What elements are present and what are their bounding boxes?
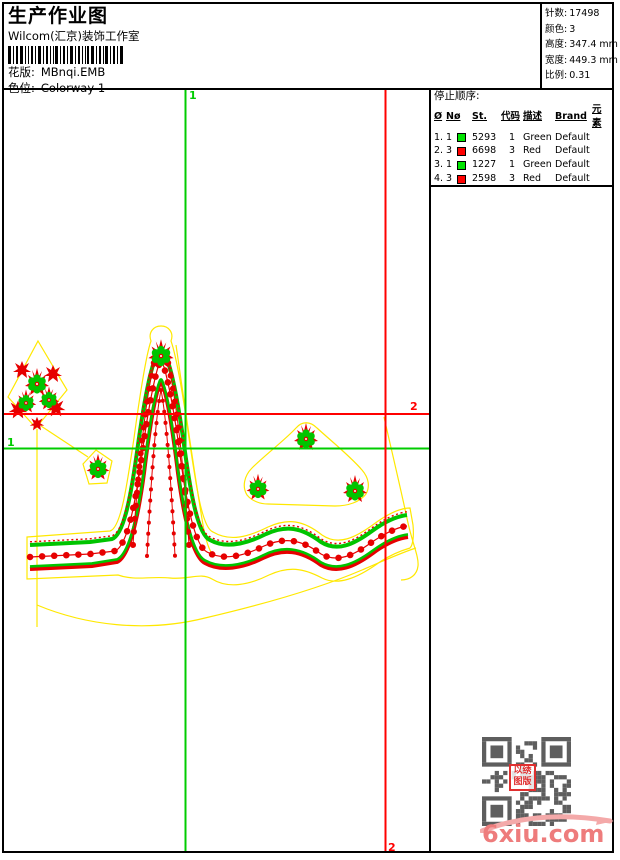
right-column: 停止顺序: Ø Nø St. 代码 描述 Brand 元素 1. 1 5293 [431,88,612,851]
stat-value: 347.4 mm [569,39,618,50]
row-no: 2. [434,144,446,158]
row-no: 5. [434,186,446,187]
row-code: 3 [501,172,523,186]
col-hash: Ø [434,110,446,124]
row-brand: Default [555,144,592,158]
stat-label: 高度: [545,39,567,50]
yellow-outline-runs [8,326,418,627]
stat-height: 高度:347.4 mm [545,37,612,53]
row-code: 1 [501,131,523,145]
row-brand: Default [555,131,592,145]
row-description: Yellow [523,186,555,187]
row-stitches: 5293 [472,131,501,145]
color-swatch [457,161,466,170]
stat-label: 颜色: [545,24,567,35]
stat-scale: 比例:0.31 [545,68,612,84]
row-no: 1. [434,131,446,145]
watermark-site-text: 6xiu.com [482,820,604,848]
design-name-value: MBnqi.EMB [41,65,105,79]
row-description: Green [523,158,555,172]
table-row: 3. 1 1227 1 Green Default [434,158,612,172]
color-swatch [457,175,466,184]
row-description: Green [523,131,555,145]
guide-label-1-top: 1 [189,89,197,102]
guide-label-2-bottom: 2 [388,841,396,851]
stop-sequence-panel: 停止顺序: Ø Nø St. 代码 描述 Brand 元素 1. 1 5293 [431,88,612,187]
col-code: 代码 [501,110,523,124]
row-no: 4. [434,172,446,186]
guide-label-2-right: 2 [410,400,418,413]
stat-label: 针数: [545,8,567,19]
row-stitches: 1680 [472,186,501,187]
row-no: 3. [434,158,446,172]
row-description: Red [523,172,555,186]
row-code: 4 [501,186,523,187]
stat-value: 0.31 [569,70,590,81]
row-stitches: 2598 [472,172,501,186]
row-description: Red [523,144,555,158]
watermark-seal: 以绣 图版 [509,764,536,791]
row-stitches: 6698 [472,144,501,158]
stop-sequence-table: Ø Nø St. 代码 描述 Brand 元素 1. 1 5293 1 Gree… [434,103,612,187]
guide-label-1-left: 1 [7,436,15,449]
stat-colors: 颜色:3 [545,22,612,38]
stat-label: 宽度: [545,55,567,66]
row-brand: Default [555,158,592,172]
row-code: 1 [501,158,523,172]
stat-value: 3 [569,24,575,35]
design-name-field: 花版:MBnqi.EMB [8,65,140,80]
page-title: 生产作业图 [8,6,140,27]
header: 生产作业图 Wilcom(汇京)装饰工作室 花版:MBnqi.EMB 色位:Co… [4,4,612,90]
table-row: 2. 3 6698 3 Red Default [434,144,612,158]
design-canvas: 1 1 2 2 [4,88,431,851]
stop-sequence-title: 停止顺序: [434,90,612,103]
col-element: 元素 [592,103,610,131]
table-row: 1. 1 5293 1 Green Default [434,131,612,145]
stat-label: 比例: [545,70,567,81]
row-brand: Default [555,186,592,187]
table-row: 5. 4 1680 4 Yellow Default [434,186,612,187]
stat-stitches: 针数:17498 [545,6,612,22]
software-subtitle: Wilcom(汇京)装饰工作室 [8,28,140,44]
col-brand: Brand [555,110,592,124]
alignment-guides: 1 1 2 2 [4,89,429,851]
row-needle: 1 [446,158,457,172]
col-description: 描述 [523,110,555,124]
stat-width: 宽度:449.3 mm [545,53,612,69]
color-swatch [457,147,466,156]
col-needle: Nø [446,110,457,124]
barcode [8,46,124,64]
worksheet-page: 生产作业图 Wilcom(汇京)装饰工作室 花版:MBnqi.EMB 色位:Co… [2,2,614,853]
table-header-row: Ø Nø St. 代码 描述 Brand 元素 [434,103,612,131]
row-needle: 1 [446,131,457,145]
col-stitches: St. [472,110,501,124]
row-stitches: 1227 [472,158,501,172]
watermark: 6xiu.com [480,813,616,849]
stat-value: 17498 [569,8,599,19]
design-name-label: 花版: [8,65,35,79]
design-stats-panel: 针数:17498 颜色:3 高度:347.4 mm 宽度:449.3 mm 比例… [540,4,612,88]
row-needle: 3 [446,172,457,186]
color-swatch [457,133,466,142]
stat-value: 449.3 mm [569,55,618,66]
seal-line: 图版 [511,777,534,788]
row-needle: 3 [446,144,457,158]
row-code: 3 [501,144,523,158]
embroidery-design-svg: 1 1 2 2 [4,88,429,851]
header-left: 生产作业图 Wilcom(汇京)装饰工作室 花版:MBnqi.EMB 色位:Co… [8,6,140,96]
table-row: 4. 3 2598 3 Red Default [434,172,612,186]
row-brand: Default [555,172,592,186]
seal-line: 以绣 [511,766,534,777]
row-needle: 4 [446,186,457,187]
